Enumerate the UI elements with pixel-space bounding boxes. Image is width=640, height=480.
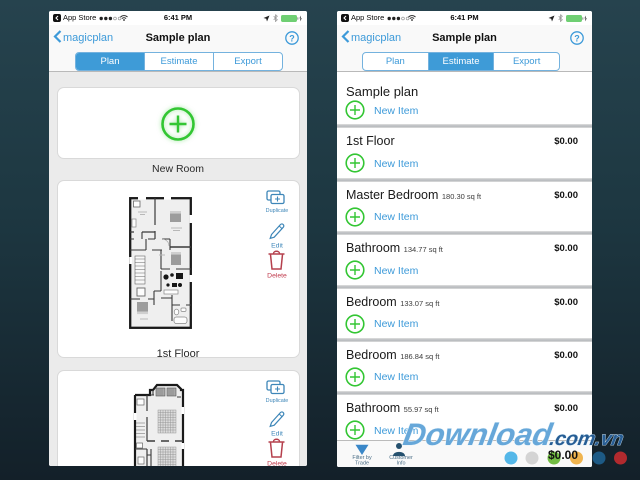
svg-text:.com.vn: .com.vn [548,428,626,450]
svg-text:?: ? [574,34,580,44]
svg-text:?: ? [289,34,295,44]
svg-text:Download: Download [401,417,556,452]
